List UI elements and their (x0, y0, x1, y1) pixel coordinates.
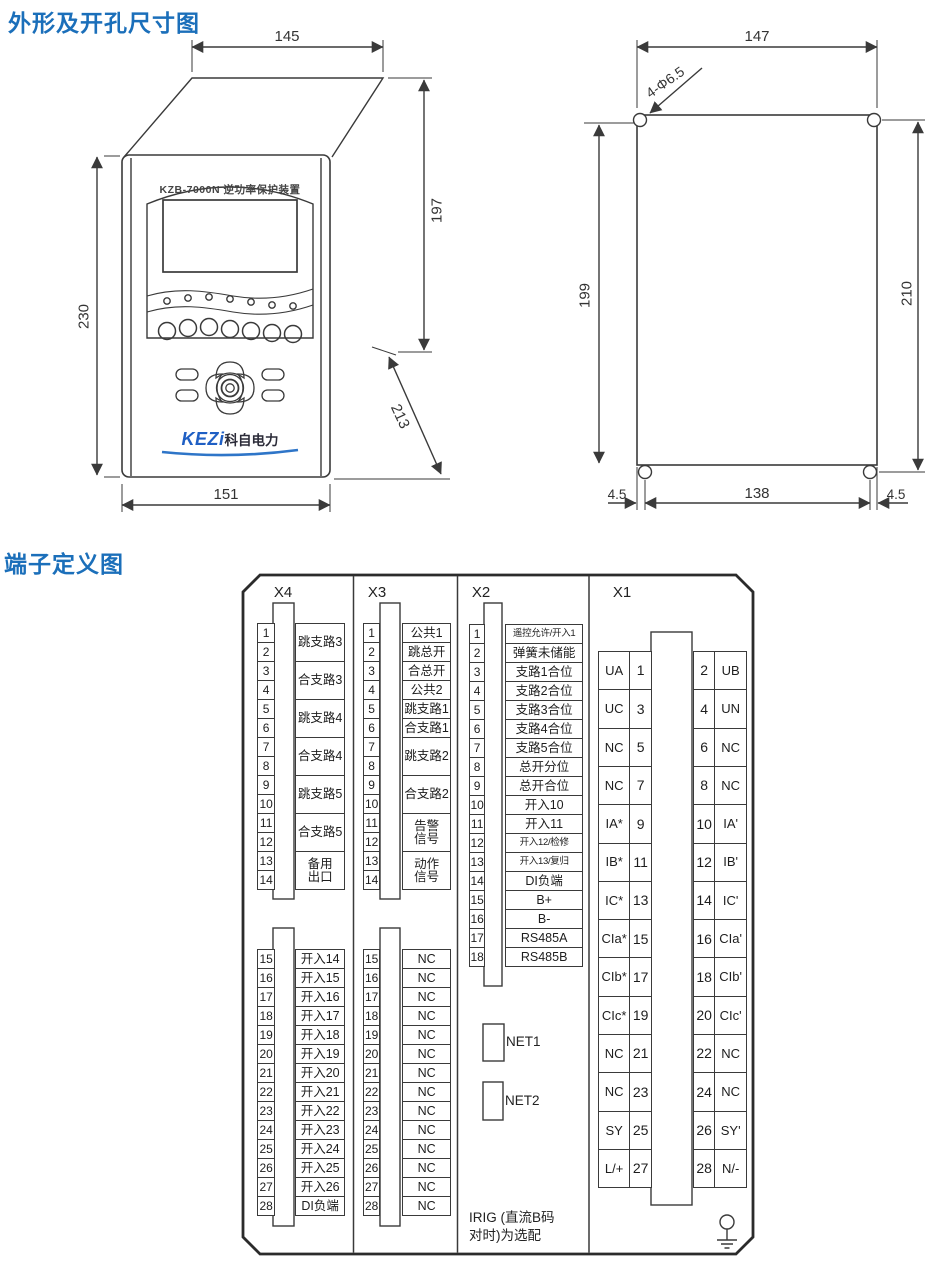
terminal-label: UA (598, 651, 630, 691)
terminal-label: IA* (598, 804, 630, 844)
terminal-number: 24 (363, 1120, 380, 1140)
terminal-number: 5 (629, 728, 652, 768)
terminal-label: UN (714, 689, 747, 729)
terminal-number: 27 (257, 1177, 275, 1197)
terminal-label: DI负端 (505, 871, 583, 891)
terminal-label: NC (402, 1139, 451, 1159)
terminal-label: 备用 出口 (295, 851, 345, 890)
terminal-label: 合支路3 (295, 661, 345, 700)
terminal-number: 19 (363, 1025, 380, 1045)
terminal-number: 19 (629, 996, 652, 1036)
terminal-label: 总开合位 (505, 776, 583, 796)
terminal-label: 开入16 (295, 987, 345, 1007)
net2-port (483, 1082, 503, 1120)
terminal-label: DI负端 (295, 1196, 345, 1216)
terminal-label: NC (402, 1006, 451, 1026)
terminal-number: 10 (257, 794, 275, 814)
terminal-label: N/- (714, 1149, 747, 1189)
brand-logo-main: KEZi (181, 429, 224, 449)
terminal-label: IC* (598, 881, 630, 921)
terminal-label: NC (402, 1158, 451, 1178)
terminal-number: 8 (363, 756, 380, 776)
terminal-number: 6 (693, 728, 715, 768)
net1-label: NET1 (506, 1034, 541, 1049)
net1-port (483, 1024, 504, 1061)
terminal-label: 跳支路1 (402, 699, 451, 719)
terminal-number: 22 (257, 1082, 275, 1102)
terminal-number: 17 (257, 987, 275, 1007)
terminal-label: 告警 信号 (402, 813, 451, 852)
terminal-number: 11 (629, 843, 652, 883)
terminal-label: 支路3合位 (505, 700, 583, 720)
terminal-number: 19 (257, 1025, 275, 1045)
terminal-number: 23 (257, 1101, 275, 1121)
terminal-label: SY' (714, 1111, 747, 1151)
terminal-number: 5 (363, 699, 380, 719)
terminal-number: 20 (257, 1044, 275, 1064)
terminal-number: 9 (469, 776, 485, 796)
net2-label: NET2 (505, 1093, 540, 1108)
device-model-label: KZB-7000N 逆功率保护装置 (147, 182, 313, 197)
terminal-label: NC (598, 728, 630, 768)
terminal-label: 动作 信号 (402, 851, 451, 890)
terminal-number: 25 (629, 1111, 652, 1151)
terminal-number: 8 (257, 756, 275, 776)
dim-cutout-height-right: 210 (899, 276, 916, 312)
terminal-number: 21 (629, 1034, 652, 1074)
terminal-label: NC (402, 1044, 451, 1064)
terminal-number: 27 (629, 1149, 652, 1189)
terminal-label: 弹簧未储能 (505, 643, 583, 663)
terminal-label: 遥控允许/开入1 (505, 624, 583, 644)
terminal-number: 27 (363, 1177, 380, 1197)
terminal-label: 合支路2 (402, 775, 451, 814)
terminal-number: 12 (693, 843, 715, 883)
terminal-number: 22 (693, 1034, 715, 1074)
terminal-number: 6 (469, 719, 485, 739)
terminal-number: 1 (469, 624, 485, 644)
terminal-number: 17 (363, 987, 380, 1007)
dim-hole-spacing: 138 (732, 485, 782, 502)
terminal-label: 开入12/检修 (505, 833, 583, 853)
terminal-number: 18 (363, 1006, 380, 1026)
terminal-number: 28 (693, 1149, 715, 1189)
terminal-number: 9 (629, 804, 652, 844)
outline-section-title: 外形及开孔尺寸图 (8, 4, 200, 38)
terminal-number: 28 (363, 1196, 380, 1216)
terminal-number: 6 (363, 718, 380, 738)
terminal-number: 5 (469, 700, 485, 720)
terminal-label: NC (402, 1082, 451, 1102)
terminal-label: CIc' (714, 996, 747, 1036)
terminal-label: 开入11 (505, 814, 583, 834)
terminal-number: 10 (469, 795, 485, 815)
terminal-label: CIb* (598, 957, 630, 997)
terminal-label: 跳支路5 (295, 775, 345, 814)
terminal-label: 开入18 (295, 1025, 345, 1045)
terminal-number: 11 (469, 814, 485, 834)
terminal-label: 开入13/复归 (505, 852, 583, 872)
terminal-label: 支路2合位 (505, 681, 583, 701)
terminal-number: 13 (469, 852, 485, 872)
terminal-number: 14 (469, 871, 485, 891)
device-top-face (124, 78, 383, 157)
terminal-number: 23 (629, 1072, 652, 1112)
terminal-number: 4 (693, 689, 715, 729)
dim-hole-margin-right: 4.5 (879, 487, 913, 502)
dim-height-front: 230 (76, 299, 93, 335)
terminal-label: 公共1 (402, 623, 451, 643)
dim-width-front: 151 (201, 486, 251, 503)
terminal-number: 15 (469, 890, 485, 910)
terminal-number: 15 (629, 919, 652, 959)
terminal-number: 17 (629, 957, 652, 997)
terminal-number: 28 (257, 1196, 275, 1216)
terminal-number: 8 (469, 757, 485, 777)
terminal-number: 3 (629, 689, 652, 729)
irig-note: IRIG (直流B码 对时)为选配 (469, 1209, 555, 1245)
dim-cutout-height-left: 199 (577, 278, 594, 314)
terminal-number: 10 (693, 804, 715, 844)
terminal-number: 1 (629, 651, 652, 691)
terminal-label: 开入21 (295, 1082, 345, 1102)
terminal-label: L/+ (598, 1149, 630, 1189)
terminal-label: UB (714, 651, 747, 691)
terminal-number: 24 (257, 1120, 275, 1140)
terminal-label: NC (714, 766, 747, 806)
terminal-number: 26 (363, 1158, 380, 1178)
terminal-label: 跳支路4 (295, 699, 345, 738)
terminal-number: 11 (363, 813, 380, 833)
terminal-number: 17 (469, 928, 485, 948)
terminal-number: 3 (257, 661, 275, 681)
terminal-label: UC (598, 689, 630, 729)
terminal-label: RS485A (505, 928, 583, 948)
terminal-number: 18 (469, 947, 485, 967)
terminal-label: IB' (714, 843, 747, 883)
terminal-number: 1 (257, 623, 275, 643)
terminal-number: 20 (363, 1044, 380, 1064)
terminal-label: NC (402, 1101, 451, 1121)
terminal-label: IA' (714, 804, 747, 844)
terminal-number: 24 (693, 1072, 715, 1112)
terminal-number: 12 (469, 833, 485, 853)
terminal-header-x2: X2 (464, 584, 498, 601)
terminal-number: 10 (363, 794, 380, 814)
terminal-number: 23 (363, 1101, 380, 1121)
terminal-label: CIc* (598, 996, 630, 1036)
terminal-label: 合支路1 (402, 718, 451, 738)
terminal-label: NC (598, 1072, 630, 1112)
terminal-number: 16 (363, 968, 380, 988)
terminal-number: 4 (257, 680, 275, 700)
terminal-label: 支路4合位 (505, 719, 583, 739)
terminal-label: IC' (714, 881, 747, 921)
terminal-label: CIa' (714, 919, 747, 959)
terminal-number: 15 (363, 949, 380, 969)
terminal-number: 25 (257, 1139, 275, 1159)
terminal-label: NC (402, 1063, 451, 1083)
terminal-number: 12 (257, 832, 275, 852)
terminal-label: NC (402, 949, 451, 969)
terminal-number: 1 (363, 623, 380, 643)
terminal-number: 5 (257, 699, 275, 719)
terminal-label: NC (598, 766, 630, 806)
terminal-label: 开入19 (295, 1044, 345, 1064)
terminal-number: 2 (257, 642, 275, 662)
terminal-number: 13 (629, 881, 652, 921)
terminal-label: NC (402, 1025, 451, 1045)
terminal-label: CIb' (714, 957, 747, 997)
terminal-number: 14 (693, 881, 715, 921)
terminal-number: 26 (257, 1158, 275, 1178)
terminal-label: 开入14 (295, 949, 345, 969)
terminal-number: 7 (469, 738, 485, 758)
terminal-number: 9 (363, 775, 380, 795)
terminal-label: 开入10 (505, 795, 583, 815)
terminal-number: 4 (363, 680, 380, 700)
terminal-label: 支路5合位 (505, 738, 583, 758)
terminal-number: 18 (693, 957, 715, 997)
terminal-label: NC (714, 728, 747, 768)
terminal-label: B- (505, 909, 583, 929)
terminal-number: 22 (363, 1082, 380, 1102)
terminal-number: 9 (257, 775, 275, 795)
terminal-number: 3 (363, 661, 380, 681)
terminal-header-x4: X4 (266, 584, 300, 601)
brand-logo: KEZi科自电力 (150, 429, 310, 450)
manual-page: 外形及开孔尺寸图 端子定义图 KZB-7000N 逆功率保护装置 KEZi科自电… (0, 0, 928, 1264)
terminal-number: 18 (257, 1006, 275, 1026)
terminal-number: 12 (363, 832, 380, 852)
terminal-label: IB* (598, 843, 630, 883)
terminal-number: 20 (693, 996, 715, 1036)
terminal-number: 26 (693, 1111, 715, 1151)
terminal-label: NC (714, 1072, 747, 1112)
dim-width-top: 145 (262, 28, 312, 45)
dimension-drawing-svg (0, 0, 928, 1264)
terminal-number: 16 (693, 919, 715, 959)
terminal-number: 2 (693, 651, 715, 691)
terminal-label: 支路1合位 (505, 662, 583, 682)
terminal-label: 开入22 (295, 1101, 345, 1121)
terminal-number: 4 (469, 681, 485, 701)
terminal-number: 14 (363, 870, 380, 890)
terminal-number: 3 (469, 662, 485, 682)
terminal-number: 7 (629, 766, 652, 806)
terminal-label: 开入24 (295, 1139, 345, 1159)
dim-cutout-width: 147 (732, 28, 782, 45)
terminal-label: 跳总开 (402, 642, 451, 662)
terminal-number: 2 (469, 643, 485, 663)
terminal-label: 跳支路3 (295, 623, 345, 662)
terminal-label: 开入20 (295, 1063, 345, 1083)
terminal-number: 25 (363, 1139, 380, 1159)
terminal-header-x3: X3 (360, 584, 394, 601)
terminal-header-x1: X1 (605, 584, 639, 601)
terminal-number: 16 (257, 968, 275, 988)
dim-height-rear: 197 (429, 193, 446, 229)
cutout-rect (637, 115, 877, 465)
terminal-number: 11 (257, 813, 275, 833)
terminal-label: 公共2 (402, 680, 451, 700)
terminal-label: RS485B (505, 947, 583, 967)
terminal-label: 合支路4 (295, 737, 345, 776)
terminal-label: NC (714, 1034, 747, 1074)
terminal-label: 开入23 (295, 1120, 345, 1140)
terminal-label: CIa* (598, 919, 630, 959)
terminal-number: 8 (693, 766, 715, 806)
terminal-label: NC (402, 968, 451, 988)
mounting-holes (634, 114, 881, 479)
terminal-label: 开入17 (295, 1006, 345, 1026)
terminal-label: B+ (505, 890, 583, 910)
terminal-label: NC (402, 987, 451, 1007)
terminal-label: NC (402, 1177, 451, 1197)
terminal-number: 21 (363, 1063, 380, 1083)
terminal-number: 21 (257, 1063, 275, 1083)
terminal-label: NC (402, 1120, 451, 1140)
terminal-label: NC (598, 1034, 630, 1074)
terminal-label: 合总开 (402, 661, 451, 681)
terminal-label: NC (402, 1196, 451, 1216)
terminal-label: 开入26 (295, 1177, 345, 1197)
terminal-label: 总开分位 (505, 757, 583, 777)
brand-logo-sub: 科自电力 (225, 433, 279, 448)
dim-hole-margin-left: 4.5 (600, 487, 634, 502)
terminal-label: 跳支路2 (402, 737, 451, 776)
terminal-number: 16 (469, 909, 485, 929)
terminal-number: 15 (257, 949, 275, 969)
terminal-number: 6 (257, 718, 275, 738)
terminal-label: 开入15 (295, 968, 345, 988)
terminal-number: 7 (257, 737, 275, 757)
terminal-number: 13 (363, 851, 380, 871)
terminal-label: SY (598, 1111, 630, 1151)
terminal-label: 开入25 (295, 1158, 345, 1178)
terminal-section-title: 端子定义图 (4, 545, 124, 579)
terminal-number: 13 (257, 851, 275, 871)
terminal-number: 7 (363, 737, 380, 757)
terminal-label: 合支路5 (295, 813, 345, 852)
terminal-number: 14 (257, 870, 275, 890)
terminal-number: 2 (363, 642, 380, 662)
